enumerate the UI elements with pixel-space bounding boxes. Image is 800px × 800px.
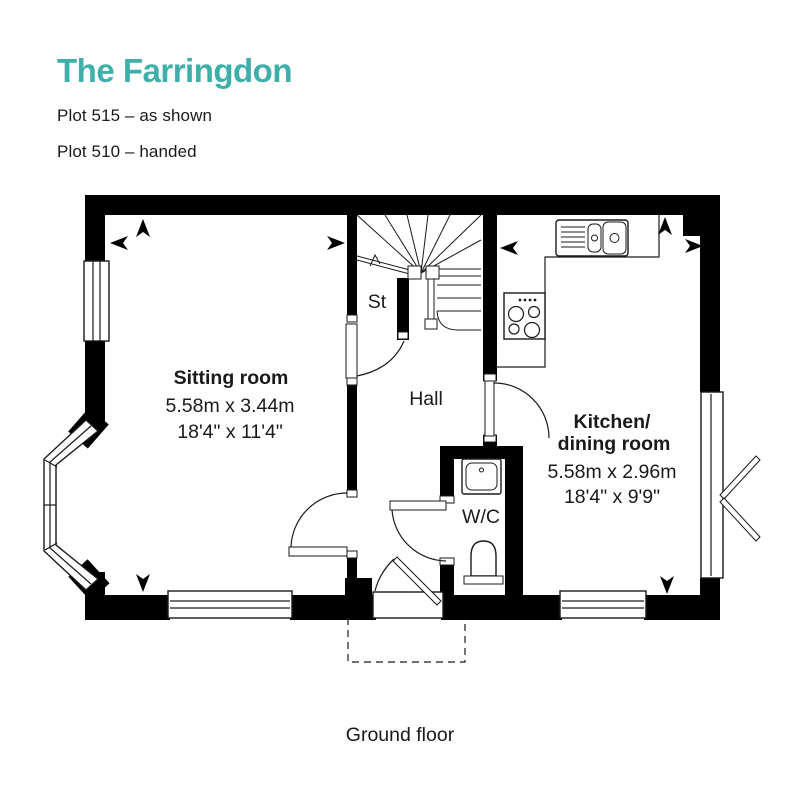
wc-toilet-bowl [471,541,496,576]
wall-end-cap [484,374,496,381]
storage-label: St [368,291,387,313]
kitchen-label-line2: dining room [558,433,671,455]
wall-hall-kitchen [483,215,497,381]
sink-half-bowl [588,224,601,252]
sink-unit [556,220,628,256]
stair-tread-line [385,215,421,273]
arrow-up-icon [658,217,672,235]
wall-storage-stub [397,278,409,340]
french-doors [701,392,760,578]
wc-toilet-cistern [464,576,503,584]
stair-flight-edge [437,311,481,330]
stair-tread-line [421,215,481,273]
sitting-room-metric: 5.58m x 3.44m [166,395,295,417]
wall-end-cap [347,490,357,497]
floor-label: Ground floor [346,724,455,746]
wall-top [85,195,720,215]
stair-tread-line [407,215,421,273]
french-door-leaf-bottom [720,498,760,541]
wc-label: W/C [462,506,500,528]
sitting-room-door-leaf [289,547,347,556]
storage-door-swing [357,341,404,376]
floorplan-drawing: Sitting room 5.58m x 3.44m 18'4" x 11'4"… [0,0,800,800]
french-door-frame [701,392,723,578]
wall-end-cap [440,558,454,565]
stair-newel-post [426,266,439,279]
kitchen-label-line1: Kitchen/ [574,411,652,433]
arrow-up-icon [136,219,150,237]
sitting-room-side-window [84,261,109,341]
wall-wc-right [505,446,523,595]
wall-wc-left-upper [440,446,454,503]
hob-control [529,299,532,302]
arrow-left-icon [110,236,128,250]
sitting-room-imperial: 18'4" x 11'4" [177,421,283,443]
kitchen-metric: 5.58m x 2.96m [548,461,677,483]
sitting-room-front-window [168,591,292,618]
arrow-left-icon [500,241,518,255]
arrow-down-icon [136,574,150,592]
kitchen-imperial: 18'4" x 9'9" [564,486,660,508]
wall-bottom-3 [441,595,562,620]
stair-tread-line [421,215,428,273]
sink-main-bowl [603,222,626,254]
wall-sitting-hall-upper [347,215,357,322]
room-labels: Sitting room 5.58m x 3.44m 18'4" x 11'4"… [166,291,677,746]
stair-rail-cap [425,319,437,329]
wall-end-cap [347,315,357,322]
porch-outline-dashed [348,618,465,662]
wall-end-cap [347,551,357,558]
wc-door-leaf [390,501,446,510]
wall-sitting-hall-foot [345,578,372,598]
arrow-down-icon [660,576,674,594]
wall-sitting-hall-mid [347,378,357,497]
wall-left-upper [85,215,105,262]
wall-end-cap [347,378,357,385]
wall-right-upper [700,195,720,392]
wall-right-lower [700,578,720,620]
floorplan-page: The Farringdon Plot 515 – as shown Plot … [0,0,800,800]
arrow-right-icon [327,236,345,250]
wall-bottom-2 [290,595,376,620]
kitchen-door-swing [494,383,549,438]
hob [504,293,545,339]
kitchen-door-leaf [485,381,494,436]
stair-tread-line [421,215,450,273]
kitchen-front-window [560,591,646,618]
hob-control [534,299,537,302]
front-door-swing [375,559,394,591]
wc-door-swing [392,510,446,561]
wall-end-cap [398,332,408,339]
stair-newel-post [408,266,421,279]
hob-control [524,299,527,302]
wall-bottom-1 [85,595,170,620]
hall-label: Hall [409,388,443,410]
french-door-leaf-top [720,456,760,499]
sitting-room-door-swing [291,493,347,547]
kitchen-fittings [497,215,659,367]
hob-control [519,299,522,302]
sitting-room-label: Sitting room [174,367,289,389]
storage-door-leaf [346,324,357,378]
